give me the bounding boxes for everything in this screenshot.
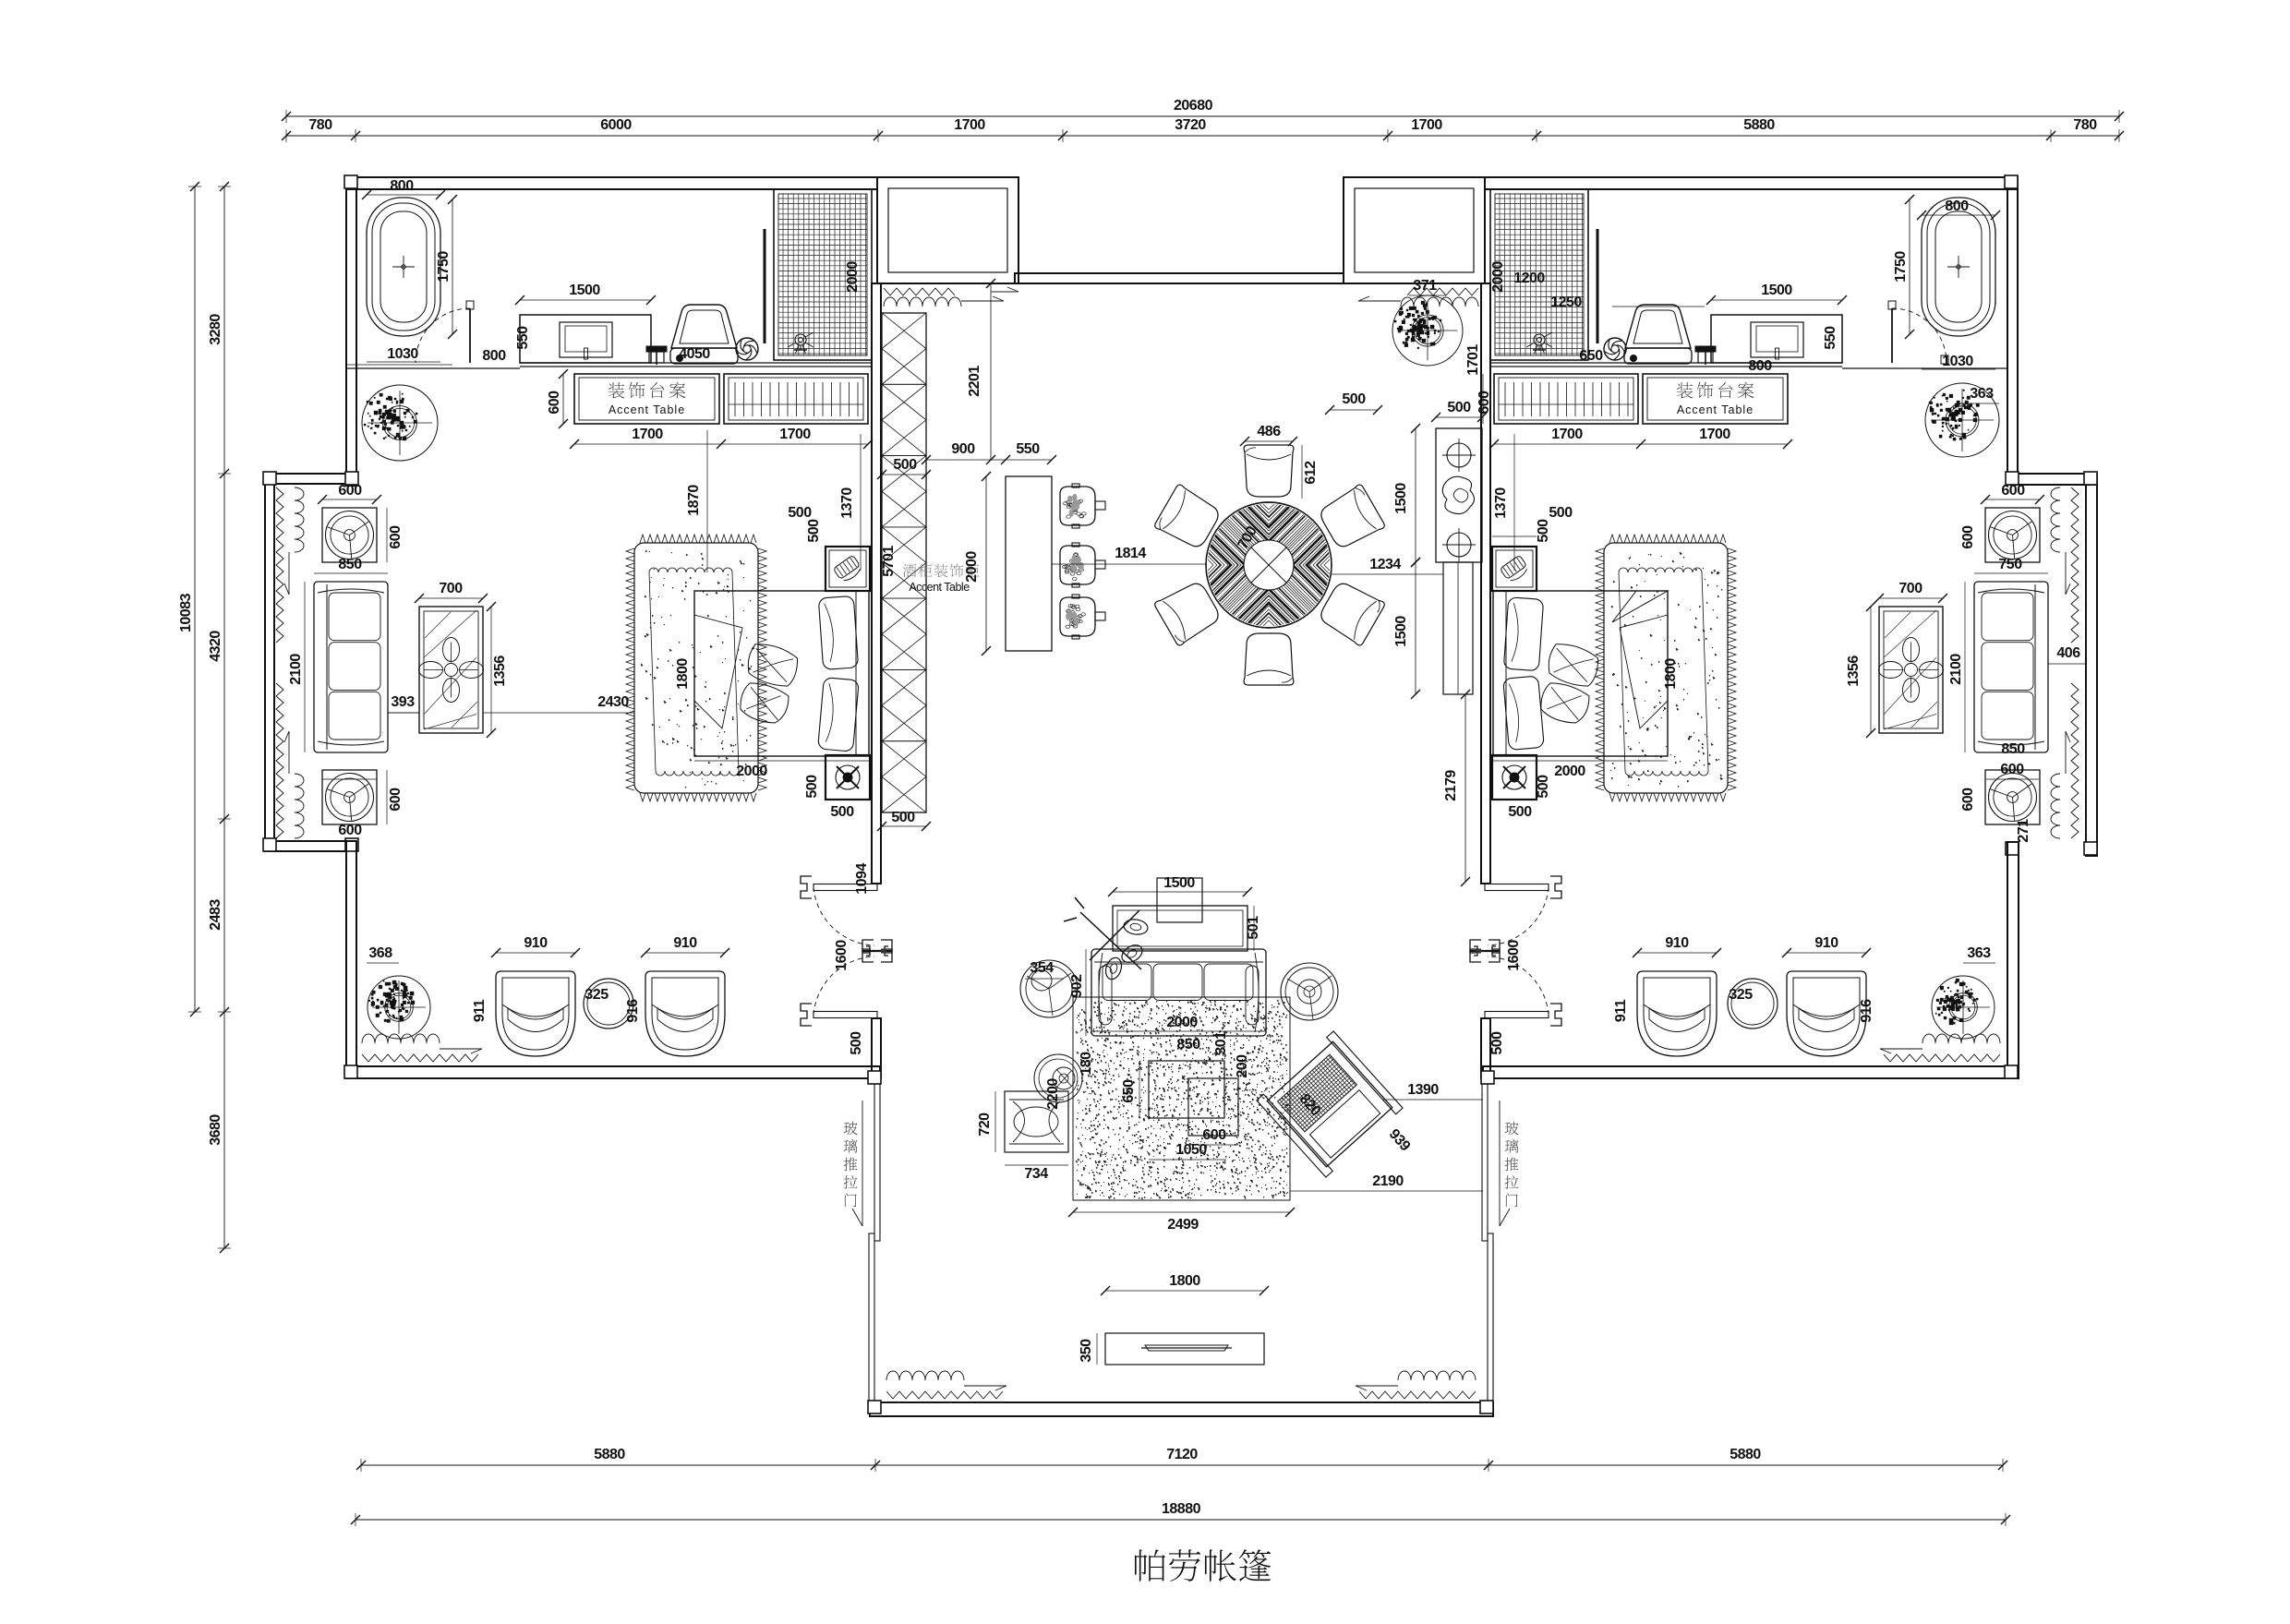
svg-text:Accent Table: Accent Table [909,581,970,594]
svg-text:2000: 2000 [845,261,861,293]
svg-text:650: 650 [1579,348,1603,364]
svg-text:600: 600 [1960,525,1976,549]
svg-text:1390: 1390 [1407,1082,1439,1098]
svg-text:500: 500 [788,505,812,521]
svg-text:800: 800 [482,348,506,364]
svg-text:501: 501 [1246,916,1261,940]
svg-text:1370: 1370 [1493,487,1509,519]
svg-text:1370: 1370 [839,487,855,519]
svg-text:500: 500 [1536,519,1551,543]
svg-text:5880: 5880 [1743,117,1775,133]
svg-text:500: 500 [1508,804,1532,820]
svg-text:2100: 2100 [288,654,304,685]
svg-text:1500: 1500 [569,283,600,298]
svg-text:1600: 1600 [1506,940,1522,971]
svg-text:301: 301 [1213,1031,1229,1055]
svg-text:1750: 1750 [1893,251,1909,283]
svg-text:406: 406 [2056,645,2080,661]
svg-text:910: 910 [673,935,697,951]
svg-text:600: 600 [1202,1127,1226,1143]
svg-text:500: 500 [893,457,917,473]
svg-text:600: 600 [2001,483,2025,499]
svg-text:4320: 4320 [208,631,223,662]
svg-text:2000: 2000 [964,551,980,583]
svg-text:2430: 2430 [597,694,629,710]
svg-text:800: 800 [1945,198,1969,214]
svg-text:500: 500 [804,775,820,799]
svg-text:2190: 2190 [1372,1173,1404,1189]
svg-text:910: 910 [1814,935,1838,951]
svg-text:18880: 18880 [1162,1501,1201,1517]
svg-text:200: 200 [1235,1054,1250,1078]
svg-text:3680: 3680 [208,1114,223,1146]
svg-text:325: 325 [585,987,609,1003]
svg-text:1800: 1800 [1169,1273,1200,1289]
svg-text:2000: 2000 [1166,1015,1198,1030]
svg-text:325: 325 [1729,987,1753,1003]
svg-text:1800: 1800 [1663,658,1679,690]
svg-text:1234: 1234 [1369,557,1401,572]
svg-text:7120: 7120 [1166,1447,1198,1462]
svg-text:1700: 1700 [954,117,985,133]
svg-text:1200: 1200 [1513,271,1545,286]
svg-text:1750: 1750 [436,251,452,283]
svg-text:600: 600 [2000,762,2024,777]
svg-text:700: 700 [439,581,463,596]
svg-text:Accent Table: Accent Table [1677,403,1754,416]
svg-text:910: 910 [524,935,548,951]
svg-text:363: 363 [1967,945,1991,961]
svg-text:1050: 1050 [1175,1142,1207,1158]
svg-text:1700: 1700 [1551,427,1583,442]
svg-text:10083: 10083 [178,593,194,632]
svg-text:612: 612 [1303,461,1319,485]
svg-text:1700: 1700 [632,427,663,442]
svg-text:2179: 2179 [1443,770,1459,801]
svg-text:500: 500 [849,1031,864,1055]
svg-text:911: 911 [1613,999,1629,1022]
svg-text:500: 500 [1489,1031,1505,1055]
svg-text:2000: 2000 [1554,764,1585,779]
svg-text:500: 500 [830,804,854,820]
svg-text:271: 271 [2016,819,2031,843]
svg-text:500: 500 [891,810,915,825]
svg-text:734: 734 [1024,1166,1048,1182]
svg-text:1356: 1356 [1846,656,1862,687]
svg-text:1870: 1870 [686,485,702,516]
svg-text:2483: 2483 [208,899,223,931]
svg-text:2100: 2100 [1948,654,1964,685]
svg-text:850: 850 [1176,1037,1200,1053]
svg-text:2000: 2000 [1490,261,1506,293]
svg-text:1500: 1500 [1163,875,1195,891]
svg-text:3720: 3720 [1175,117,1206,133]
svg-text:Accent Table: Accent Table [609,403,685,416]
svg-text:650: 650 [1121,1079,1137,1103]
svg-text:20680: 20680 [1174,98,1213,114]
svg-text:850: 850 [2001,741,2025,757]
svg-text:500: 500 [1536,775,1551,799]
svg-text:550: 550 [1016,441,1040,457]
svg-text:393: 393 [391,694,415,710]
svg-text:1700: 1700 [779,427,811,442]
svg-text:1356: 1356 [492,656,508,687]
svg-text:486: 486 [1257,424,1281,439]
svg-text:500: 500 [1549,505,1573,521]
svg-text:916: 916 [625,999,641,1023]
svg-text:500: 500 [1447,400,1471,415]
svg-text:354: 354 [1030,960,1054,976]
svg-text:1600: 1600 [834,940,850,971]
svg-text:1094: 1094 [854,863,870,895]
svg-text:3280: 3280 [208,314,223,345]
svg-text:1500: 1500 [1393,616,1409,647]
svg-text:800: 800 [1748,358,1772,374]
svg-text:5880: 5880 [594,1447,625,1462]
svg-text:2000: 2000 [736,764,767,779]
svg-text:2201: 2201 [967,366,982,397]
svg-text:780: 780 [308,117,332,133]
svg-text:600: 600 [1476,391,1492,415]
svg-text:800: 800 [390,178,414,194]
svg-text:4050: 4050 [679,346,710,362]
svg-text:910: 910 [1665,935,1689,951]
svg-text:368: 368 [368,945,392,961]
svg-text:1500: 1500 [1761,283,1792,298]
svg-text:1500: 1500 [1393,483,1409,514]
svg-text:916: 916 [1859,999,1874,1023]
svg-text:5701: 5701 [881,546,897,577]
svg-text:500: 500 [806,519,822,543]
svg-text:911: 911 [472,999,488,1022]
svg-text:6000: 6000 [600,117,632,133]
svg-text:350: 350 [1079,1339,1094,1363]
svg-text:600: 600 [388,788,404,812]
svg-text:600: 600 [338,823,362,838]
svg-text:600: 600 [338,483,362,499]
svg-text:600: 600 [547,391,562,415]
svg-text:363: 363 [1970,386,1994,402]
svg-text:700: 700 [1898,581,1922,596]
svg-text:720: 720 [977,1113,993,1137]
svg-text:2499: 2499 [1167,1217,1199,1233]
svg-text:900: 900 [951,441,975,457]
svg-text:550: 550 [515,326,531,350]
svg-text:600: 600 [1960,788,1976,812]
svg-text:1701: 1701 [1465,344,1481,376]
svg-text:780: 780 [2073,117,2097,133]
svg-text:500: 500 [1342,391,1366,407]
svg-text:1700: 1700 [1411,117,1442,133]
svg-text:1800: 1800 [675,658,691,690]
svg-text:1700: 1700 [1699,427,1730,442]
svg-text:1814: 1814 [1115,546,1146,561]
svg-text:5880: 5880 [1730,1447,1761,1462]
svg-text:1030: 1030 [387,346,418,362]
svg-text:600: 600 [388,525,404,549]
svg-text:550: 550 [1823,326,1838,350]
